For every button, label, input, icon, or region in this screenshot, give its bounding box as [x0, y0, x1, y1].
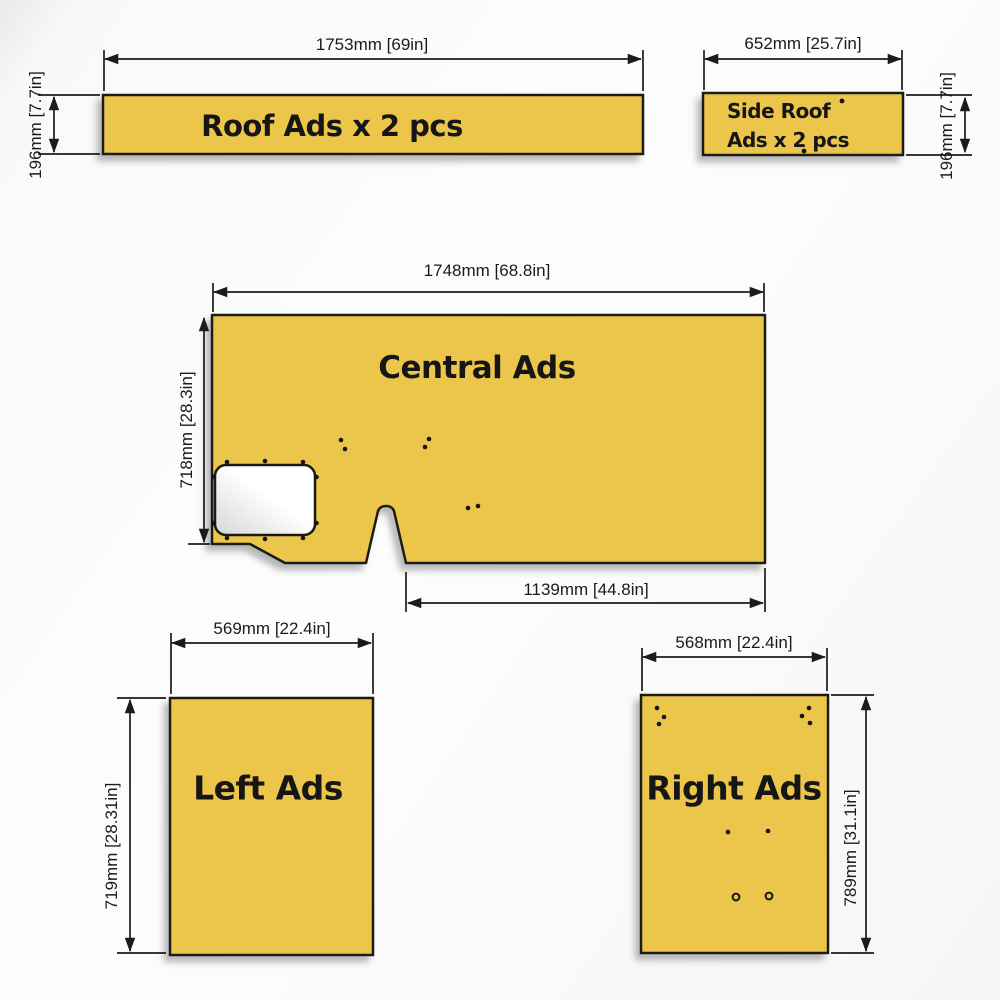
side-roof-panel-label-line1: Side Roof — [727, 97, 849, 126]
side-roof-panel-label: Side Roof Ads x 2 pcs — [727, 97, 849, 155]
right-width-dim: 568mm [22.4in] — [675, 633, 792, 653]
right-height-dim: 789mm [31.1in] — [841, 789, 861, 906]
left-panel-shape — [170, 698, 373, 955]
central-panel-cutout — [215, 465, 315, 535]
ad-panels-dimension-diagram: 1753mm [69in] 196mm [7.7in] 652mm [25.7i… — [0, 0, 1000, 1000]
roof-panel-label: Roof Ads x 2 pcs — [201, 109, 463, 143]
central-height-dim: 718mm [28.3in] — [177, 371, 197, 488]
right-panel-label: Right Ads — [646, 769, 821, 808]
left-panel-label: Left Ads — [193, 769, 343, 808]
left-width-dim: 569mm [22.4in] — [213, 619, 330, 639]
central-width-dim: 1748mm [68.8in] — [424, 261, 551, 281]
roof-height-dim: 196mm [7.7in] — [26, 71, 46, 179]
side-roof-width-dim: 652mm [25.7in] — [744, 34, 861, 54]
central-panel-label: Central Ads — [378, 350, 575, 386]
roof-width-dim: 1753mm [69in] — [316, 35, 428, 55]
central-lower-width-dim: 1139mm [44.8in] — [523, 580, 648, 600]
side-roof-panel-label-line2: Ads x 2 pcs — [727, 126, 849, 155]
left-height-dim: 719mm [28.31in] — [102, 783, 122, 910]
right-panel-shape — [641, 695, 828, 953]
side-roof-height-dim: 196mm [7.7in] — [937, 72, 957, 180]
